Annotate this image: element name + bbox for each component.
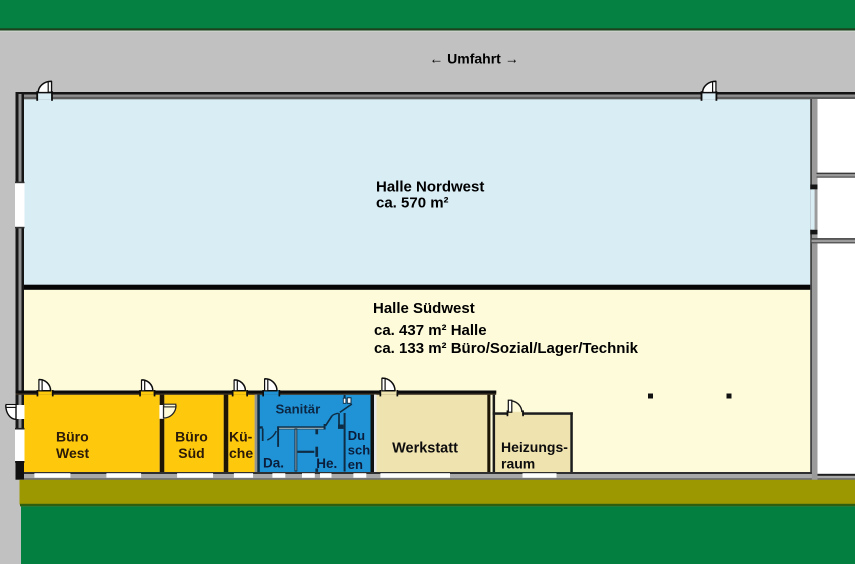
svg-text:Kü-: Kü- [229,428,253,444]
svg-text:← Umfahrt →: ← Umfahrt → [429,51,518,67]
svg-text:Büro: Büro [175,428,208,444]
svg-text:West: West [56,445,90,461]
svg-text:ca. 570 m²: ca. 570 m² [376,195,449,212]
svg-text:ca. 133 m² Büro/Sozial/Lager/T: ca. 133 m² Büro/Sozial/Lager/Technik [374,340,639,357]
svg-text:sch: sch [348,443,370,458]
svg-text:che: che [229,445,253,461]
svg-text:Du: Du [348,428,365,443]
svg-text:ca. 437 m² Halle: ca. 437 m² Halle [374,322,487,339]
svg-text:Büro: Büro [56,428,89,444]
svg-text:en: en [348,457,363,472]
svg-text:Werkstatt: Werkstatt [392,440,458,456]
svg-text:Süd: Süd [178,445,204,461]
svg-text:Sanitär: Sanitär [276,402,321,417]
svg-text:raum: raum [501,456,535,472]
svg-text:Halle Nordwest: Halle Nordwest [376,179,484,196]
svg-text:He.: He. [316,456,337,471]
svg-text:Halle Südwest: Halle Südwest [373,300,475,317]
svg-text:Heizungs-: Heizungs- [501,439,568,455]
svg-text:Da.: Da. [263,456,284,471]
